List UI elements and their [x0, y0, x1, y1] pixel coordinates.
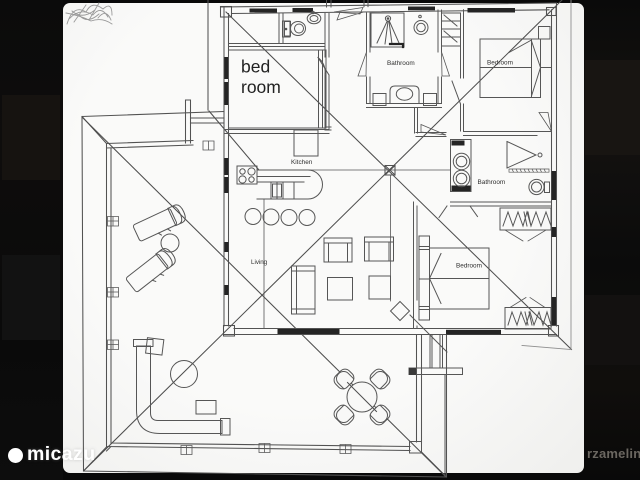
svg-text:Bathroom: Bathroom: [387, 60, 415, 67]
svg-text:Living: Living: [251, 259, 268, 266]
svg-text:bed: bed: [241, 57, 270, 77]
svg-text:Bedroom: Bedroom: [487, 60, 513, 67]
svg-text:Kitchen: Kitchen: [291, 159, 313, 166]
svg-text:room: room: [241, 77, 281, 97]
svg-text:Bedroom: Bedroom: [456, 263, 482, 270]
svg-text:Bathroom: Bathroom: [478, 179, 506, 186]
